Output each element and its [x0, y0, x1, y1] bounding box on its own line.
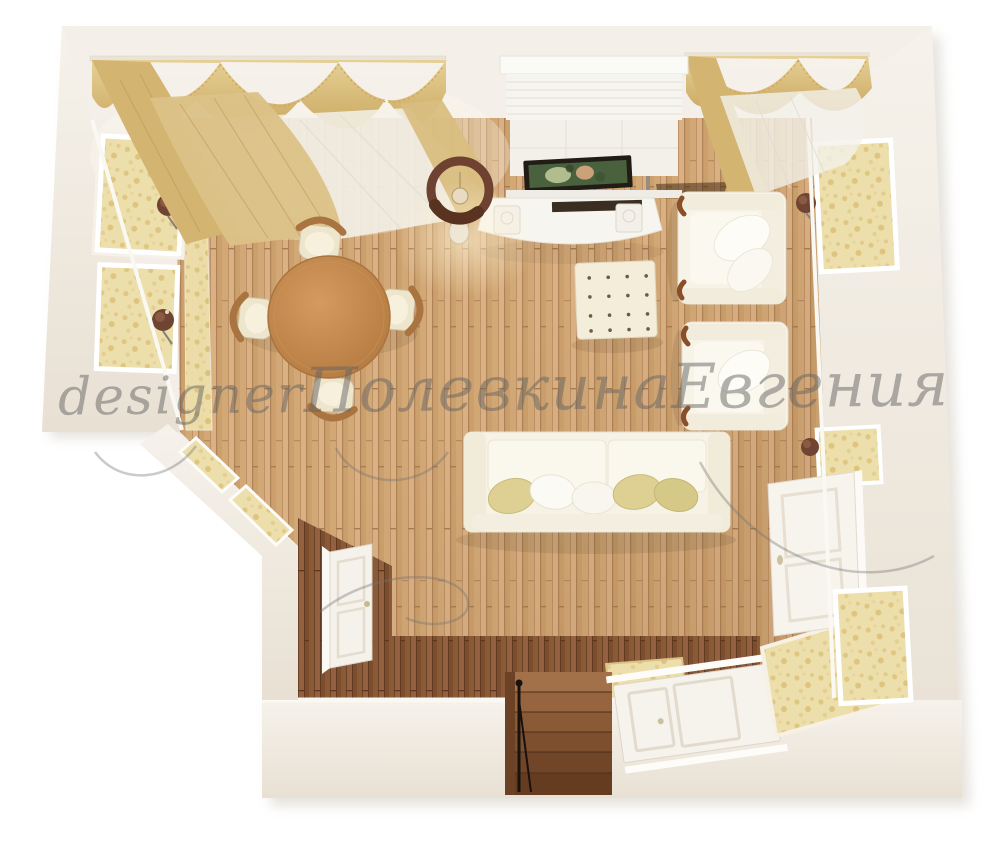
- tufted-ottoman: [569, 260, 664, 354]
- door-knob: [364, 601, 370, 607]
- render-scene: [0, 0, 986, 854]
- sofa: [456, 432, 736, 554]
- door-handle: [777, 555, 783, 565]
- flat-tv: [523, 155, 633, 193]
- staircase-down: [505, 672, 612, 795]
- interior-render-living-room-top-view: designer Полевкина Евгения: [0, 0, 986, 854]
- armchair-1: [667, 192, 786, 304]
- pillow-white: [572, 482, 616, 514]
- corridor-door: [322, 544, 372, 674]
- round-dining-table: [268, 256, 390, 378]
- armchair-2: [671, 322, 788, 430]
- right-wall-wallpaper-panel-3: [835, 588, 911, 704]
- wall-sconce-right-2: [801, 438, 819, 456]
